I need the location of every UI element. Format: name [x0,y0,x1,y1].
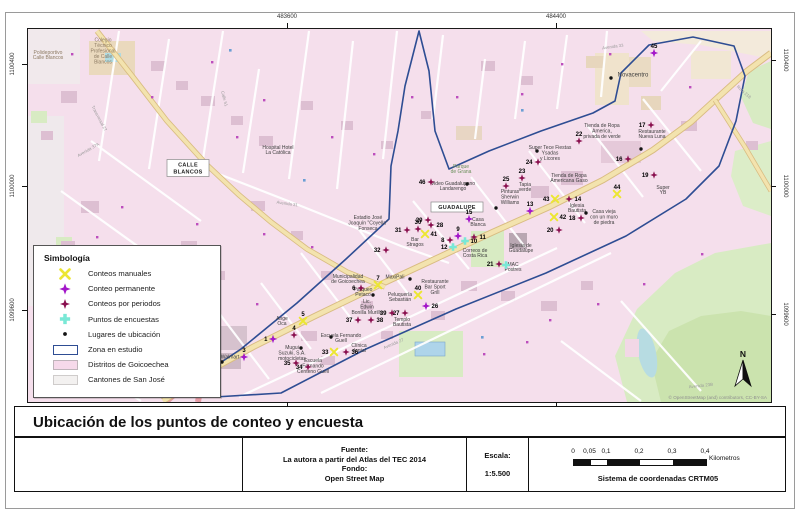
marker-number: 30 [415,220,422,226]
grid-coord-right: 1100000 [782,175,788,198]
ubicacion-legend-icon [50,327,80,341]
marker-number: 18 [569,216,576,222]
scalebar [573,459,707,466]
map-label: Iglesia deGuadalupe [509,243,534,254]
map-label: TemploBautista [393,317,411,328]
marker-number: 15 [466,210,473,216]
map-label: Novacentro [618,73,649,79]
scalebar-tick-label: 0 [571,448,575,455]
grid-coord-left: 1099600 [10,298,16,321]
scalebar-tick-label: 0,3 [667,448,676,455]
legend-item-label: Lugares de ubicación [88,330,160,339]
scalebar-tick-label: 0,2 [634,448,643,455]
marker-number: 11 [480,235,487,241]
source-line: La autora a partir del Atlas del TEC 201… [243,455,466,465]
marker-number: 20 [547,228,554,234]
map-marker-ubicacion[interactable] [639,147,642,150]
legend-item-permanente: Conteo permanente [34,281,220,296]
marker-number: 46 [419,180,426,186]
legend-item-encuesta: Puntos de encuestas [34,312,220,327]
map-label: Tapiaverde [519,182,532,193]
map-label: PinturasSherwinWilliams [501,189,520,206]
marker-number: 14 [575,197,582,203]
scale-label: Escala: [467,451,528,460]
scalebar-labels: 00,050,10,20,30,4 [529,448,787,456]
map-label: IglesiaBautista [568,203,586,214]
map-label: Hospital HotelLa Católica [262,145,293,156]
grid-coord-right: 1099600 [782,302,788,325]
map-marker-ubicacion[interactable] [494,206,497,209]
info-table: Fuente: La autora a partir del Atlas del… [14,437,786,492]
legend-title: Simbología [34,246,220,266]
marker-number: 34 [296,365,303,371]
source-cell: Fuente: La autora a partir del Atlas del… [242,438,466,491]
source-line: Open Street Map [243,474,466,484]
map-marker-ubicacion[interactable] [329,335,332,338]
marker-number: 33 [322,350,329,356]
map-label: Municipalidadde Goicoechea [331,274,365,285]
map-label: MaxiPali [386,275,405,281]
scalebar-segment [574,460,591,465]
empty-cell [15,438,242,491]
map-layout-page: ColegioTécnicoProfesionalde CalleBlancos… [0,0,800,518]
legend-item-label: Cantones de San José [88,375,165,384]
map-label: Walmart [221,355,240,361]
map-label: Parquede Grana [451,164,472,175]
marker-number: 35 [284,361,291,367]
marker-number: 42 [560,215,567,221]
scalebar-tick-label: 0,05 [583,448,596,455]
marker-number: 39 [380,311,387,317]
marker-number: 43 [543,197,550,203]
encuesta-legend-icon [50,312,80,326]
crs-label: Sistema de coordenadas CRTM05 [529,474,787,483]
source-line: Fuente: [243,445,466,455]
map-marker-ubicacion[interactable] [371,293,374,296]
scalebar-segment [607,460,640,465]
map-label: AngeOca [276,316,288,327]
scalebar-cell: 00,050,10,20,30,4 Kilometros Sistema de … [528,438,787,491]
map-marker-ubicacion[interactable] [609,76,612,79]
marker-number: 44 [614,185,621,191]
marker-number: 31 [395,228,402,234]
legend-item-distrito: Distritos de Goicoechea [34,357,220,372]
map-label: CasaBlanca [470,217,486,228]
marker-number: 25 [503,177,510,183]
title-bar: Ubicación de los puntos de conteo y encu… [14,406,786,437]
grid-tick [771,314,776,315]
marker-number: 21 [487,262,494,268]
marker-number: 26 [432,304,439,310]
grid-tick [22,186,27,187]
grid-tick [22,310,27,311]
periodos-legend-icon [50,297,80,311]
scalebar-segment [673,460,706,465]
map-label: Casa viejacon un murode piedra [590,209,618,226]
legend-item-periodos: Conteos por periodos [34,296,220,311]
grid-tick [556,23,557,28]
marker-number: 45 [651,44,658,50]
place-box-label: CALLE [178,163,198,169]
marker-number: 19 [642,173,649,179]
grid-tick [22,64,27,65]
map-marker-ubicacion[interactable] [299,346,302,349]
grid-coord-top: 484400 [546,14,566,20]
place-box-label: BLANCOS [173,169,202,175]
marker-number: 17 [639,123,646,129]
map-label: Tienda de RopaAmericana Gaso [550,173,587,184]
marker-number: 23 [519,169,526,175]
legend-item-label: Puntos de encuestas [88,315,159,324]
map-label: RestauranteNueva Luna [638,129,665,140]
grid-coord-left: 1100400 [10,53,16,76]
grid-coord-right: 1100400 [782,49,788,72]
map-marker-ubicacion[interactable] [408,277,411,280]
legend-item-ubicacion: Lugares de ubicación [34,327,220,342]
legend-item-label: Conteos por periodos [88,299,161,308]
marker-number: 37 [346,318,353,324]
scalebar-segment [640,460,673,465]
scalebar-tick-label: 0,1 [601,448,610,455]
grid-coord-left: 1100000 [10,175,16,198]
legend-item-label: Conteos manuales [88,269,151,278]
legend-item-zona: Zona en estudio [34,342,220,357]
distrito-legend-icon [50,360,80,370]
source-line: Fondo: [243,464,466,474]
map-label: PeluqueríaSebastián [388,292,412,303]
map-label: PolideportivoCalle Blancos [33,50,64,61]
marker-number: 12 [441,245,448,251]
grid-tick [287,23,288,28]
map-label: Correos deCosta Rica [463,248,488,259]
legend-item-label: Distritos de Goicoechea [88,360,169,369]
marker-number: 13 [527,202,534,208]
legend-item-label: Conteo permanente [88,284,155,293]
grid-tick [771,186,776,187]
marker-number: 36 [352,350,359,356]
marker-number: 38 [377,318,384,324]
zona-legend-icon [50,345,80,355]
marker-number: 28 [437,223,444,229]
grid-tick [771,60,776,61]
scale-cell: Escala: 1:5.500 [466,438,528,491]
map-marker-ubicacion[interactable] [584,211,587,214]
legend-item-manual: Conteos manuales [34,266,220,281]
permanente-legend-icon [50,282,80,296]
marker-number: 22 [576,132,583,138]
grid-coord-top: 483600 [277,14,297,20]
marker-number: 27 [393,311,400,317]
marker-number: 24 [526,160,533,166]
scalebar-tick-label: 0,4 [700,448,709,455]
map-marker-ubicacion[interactable] [465,182,468,185]
page-title: Ubicación de los puntos de conteo y encu… [15,407,785,431]
scale-value: 1:5.500 [467,469,528,478]
marker-number: 41 [431,232,438,238]
scalebar-unit: Kilometros [709,455,740,462]
canton-legend-icon [50,375,80,385]
marker-number: 16 [616,157,623,163]
legend-box: Simbología Conteos manualesConteo perman… [33,245,221,398]
manual-legend-icon [50,267,80,281]
map-marker-ubicacion[interactable] [535,149,538,152]
north-label: N [740,349,746,359]
osm-attribution: © OpenStreetMap (and) contributors, CC-B… [669,394,768,400]
legend-item-label: Zona en estudio [88,345,142,354]
marker-number: 32 [374,248,381,254]
marker-number: 40 [415,286,422,292]
legend-item-canton: Cantones de San José [34,372,220,387]
scalebar-segment [591,460,608,465]
